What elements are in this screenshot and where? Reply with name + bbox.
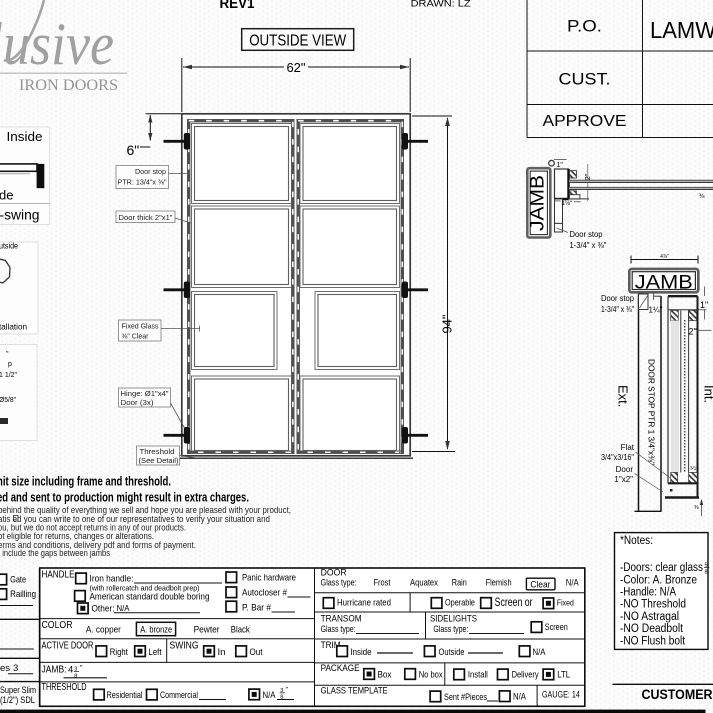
svg-text:Flemish: Flemish [486,578,512,588]
svg-text:American standard double borin: American standard double boring [90,591,210,602]
svg-text:nit size including frame and t: nit size including frame and threshold. [0,474,171,488]
svg-text:A. bronze: A. bronze [140,625,172,636]
svg-text:Residential: Residential [107,690,143,701]
svg-text:Door: Door [616,465,634,474]
svg-text:t include the gaps between jam: t include the gaps between jambs [0,548,111,558]
svg-text:-NO Flush bolt: -NO Flush bolt [620,635,686,647]
svg-text:es: es [0,663,10,674]
svg-text:Glass type:: Glass type: [321,578,357,588]
svg-text:CUST.: CUST. [559,71,611,89]
svg-text:Rain: Rain [452,578,467,588]
svg-text:Commercial: Commercial [160,690,198,701]
svg-text:-NO Deadbolt: -NO Deadbolt [620,623,684,635]
svg-text:Delivery: Delivery [512,670,539,680]
svg-text:Door stop: Door stop [570,229,603,239]
svg-text:Right: Right [110,647,128,658]
svg-text:JAMB: JAMB [527,175,549,231]
svg-text:JAMB: JAMB [635,271,693,293]
svg-text:Screen or: Screen or [495,595,533,609]
svg-text:Fixed Glass: Fixed Glass [122,322,159,331]
svg-text:Operable: Operable [445,598,475,609]
svg-text:N/A: N/A [117,604,131,613]
svg-text:Sent #Pieces: Sent #Pieces [444,692,487,702]
svg-text:Fixed: Fixed [557,598,574,608]
svg-text:GLASS TEMPLATE: GLASS TEMPLATE [321,686,388,697]
svg-text:Inside: Inside [351,647,372,657]
svg-text:(See Detail): (See Detail) [139,456,179,465]
svg-text:SWING: SWING [170,640,199,651]
svg-text:APPROVE: APPROVE [543,113,627,130]
svg-text:N/A: N/A [566,578,579,588]
svg-text:-swing: -swing [0,208,40,223]
svg-text:Box: Box [378,670,392,680]
svg-text:1-3/4" x ⅜": 1-3/4" x ⅜" [570,240,607,250]
svg-text:ACTIVE DOOR: ACTIVE DOOR [42,640,94,651]
svg-text:In: In [218,647,226,658]
svg-text:de: de [0,188,13,203]
svg-text:-NO Threshold: -NO Threshold [620,599,686,611]
svg-text:1⅛": 1⅛" [562,201,572,207]
svg-text:THRESHOLD: THRESHOLD [42,682,87,693]
svg-text:IRON DOORS: IRON DOORS [19,77,118,94]
svg-text:Aquatex: Aquatex [410,578,438,588]
svg-text:lusive: lusive [0,11,114,77]
svg-text:OUTSIDE VIEW: OUTSIDE VIEW [249,33,347,50]
svg-text:Frost: Frost [374,578,391,588]
svg-text:P.O.: P.O. [567,18,602,36]
svg-text:Pewter: Pewter [194,625,220,636]
svg-text:Door (3x): Door (3x) [121,398,155,407]
svg-text:-NO Astragal: -NO Astragal [620,611,679,623]
svg-text:Flat: Flat [621,443,635,452]
svg-text:tallation: tallation [0,322,27,332]
svg-text:1¼": 1¼" [649,306,663,315]
svg-text:P. Bar #: P. Bar # [242,603,272,614]
svg-text:Left: Left [149,647,162,658]
svg-text:PACKAGE: PACKAGE [321,663,360,674]
svg-text:3/16: 3/16 [690,466,699,471]
svg-text:Autocloser #: Autocloser # [242,588,288,599]
svg-text:LTL: LTL [557,670,570,680]
svg-text:Threshold: Threshold [140,447,175,456]
svg-text:ed and sent to production migh: ed and sent to production might result i… [0,491,249,505]
svg-text:Hurricane rated: Hurricane rated [337,598,391,609]
svg-text:Gate: Gate [10,574,26,585]
svg-text:Glass type:: Glass type: [433,624,468,634]
svg-text:94": 94" [440,314,455,333]
svg-text:GAUGE: 14: GAUGE: 14 [542,689,580,700]
svg-text:1 1/2": 1 1/2" [0,372,18,379]
svg-text:2": 2" [689,327,697,337]
svg-text:Inside: Inside [7,130,43,144]
svg-text:Glass type:: Glass type: [321,624,356,634]
svg-text:(1/2") SDL: (1/2") SDL [0,695,35,706]
svg-text:3: 3 [13,663,18,674]
svg-text:⅜" Clear: ⅜" Clear [122,332,149,341]
svg-text:DOOR STOP PTR 1 3/4"x⅜": DOOR STOP PTR 1 3/4"x⅜" [646,359,656,465]
svg-text:Outside: Outside [439,647,465,657]
svg-text:8: 8 [74,673,77,679]
svg-text:Install: Install [468,670,488,680]
svg-text:Iron handle:: Iron handle: [90,574,134,585]
svg-text:Int.: Int. [702,385,713,403]
svg-text:No box: No box [419,670,443,680]
svg-text:-Doors: clear glass: -Doors: clear glass [620,562,703,574]
svg-text:Door stop: Door stop [601,293,634,303]
svg-text:REV1: REV1 [220,0,255,12]
svg-text:-Handle: N/A: -Handle: N/A [620,587,676,599]
svg-text:Out: Out [250,647,263,658]
svg-text:-Color: A. Bronze: -Color: A. Bronze [620,574,697,586]
svg-text:Ext.: Ext. [616,385,631,407]
svg-text:Hinge: Ø1"x4": Hinge: Ø1"x4" [121,389,169,398]
svg-text:1": 1" [700,300,708,310]
svg-text:utside: utside [0,242,18,251]
svg-text:4: 4 [68,665,73,676]
svg-text:*Notes:: *Notes: [620,535,653,547]
svg-text:6": 6" [127,142,140,158]
svg-text:Railling: Railling [10,589,36,600]
svg-text:Screen: Screen [545,622,568,632]
svg-text:Panic hardware: Panic hardware [242,573,296,584]
svg-text:⅜: ⅜ [694,505,699,511]
svg-text:⅜: ⅜ [699,193,705,200]
svg-text:N/A: N/A [263,690,277,701]
svg-text:3/4"x3/16": 3/4"x3/16" [601,453,634,462]
svg-text:4⅞": 4⅞" [660,254,669,260]
svg-text:1": 1" [557,162,564,169]
svg-text:Black: Black [231,625,250,636]
svg-text:Door thick 2"x1": Door thick 2"x1" [119,213,173,222]
svg-text:Ø5/8": Ø5/8" [0,397,16,404]
svg-text:COLOR: COLOR [42,620,73,631]
svg-text:1-3/4" x ⅜": 1-3/4" x ⅜" [601,304,634,314]
svg-text:N/A: N/A [513,692,526,702]
svg-text:62": 62" [286,60,305,75]
svg-text:1"x2": 1"x2" [614,475,633,484]
svg-text:LAMW: LAMW [650,17,713,43]
svg-text:PTR: 13/4"x ⅜": PTR: 13/4"x ⅜" [118,178,167,187]
svg-text:CUSTOMER: CUSTOMER [642,687,713,702]
svg-text:Door stop: Door stop [135,167,166,176]
svg-text:JAMB:: JAMB: [42,665,67,676]
svg-text:p: p [8,361,12,368]
svg-text:8: 8 [705,569,708,575]
svg-text:HANDLE: HANDLE [42,570,75,581]
svg-text:N/A: N/A [533,647,546,657]
svg-text:Clear: Clear [530,579,550,589]
svg-text:Other:: Other: [92,604,115,615]
svg-text:A. copper: A. copper [86,625,121,636]
svg-text:DRAWN: LZ: DRAWN: LZ [411,0,471,10]
